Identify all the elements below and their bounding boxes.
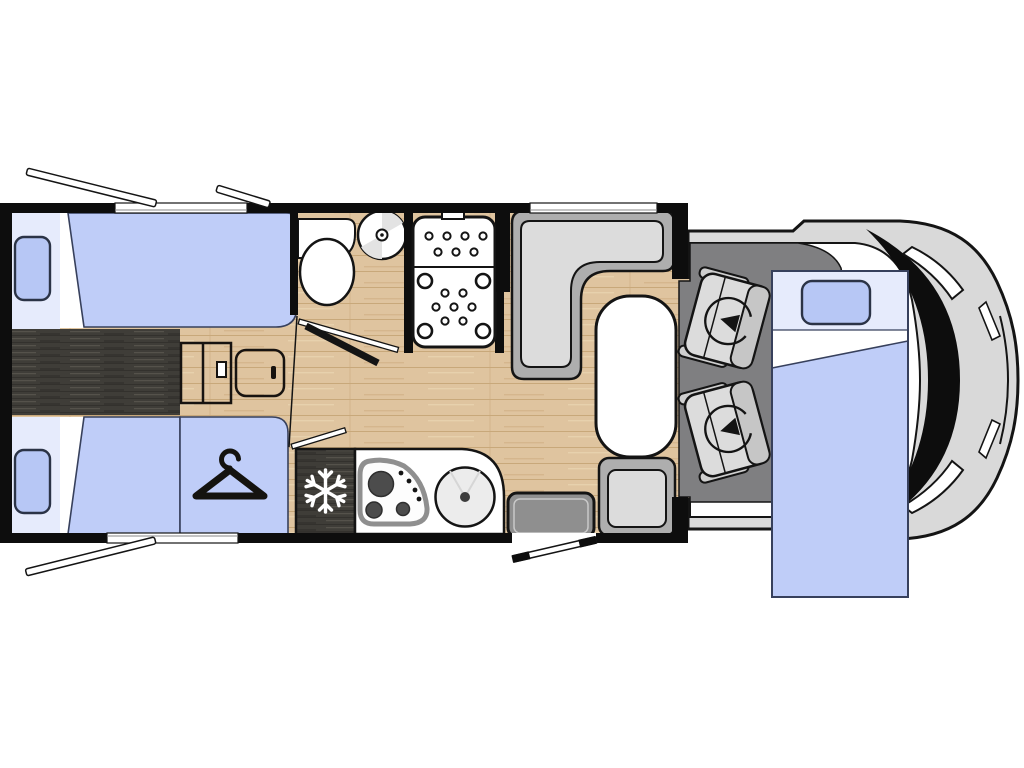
- wall-cab-stub-top: [672, 203, 688, 279]
- drop-down-bed: [772, 271, 908, 597]
- floorplan-svg: [0, 0, 1024, 768]
- wall-top-1: [0, 203, 115, 213]
- wall-shower-stub: [496, 203, 510, 292]
- entrance: [508, 493, 594, 537]
- motorhome-floorplan: [0, 0, 1024, 768]
- drop-bed-pillow: [802, 281, 870, 324]
- kitchen: [296, 449, 504, 534]
- single-bed-bottom: [12, 417, 180, 534]
- bedroom-window-bottom: [107, 533, 238, 543]
- wardrobe: [180, 417, 288, 534]
- wall-top-2: [247, 203, 530, 213]
- habitation: [0, 168, 688, 576]
- pillow: [15, 237, 50, 300]
- open-window-bar-top-1: [26, 168, 157, 207]
- wall-cab-stub-bottom: [672, 497, 688, 543]
- bed-mattress: [68, 213, 297, 327]
- single-bed-top: [12, 213, 297, 329]
- bed-mattress: [68, 417, 180, 534]
- dinette-side-seat: [599, 458, 675, 536]
- toilet: [300, 239, 354, 305]
- bedroom-walkway: [10, 329, 180, 415]
- wall-rear: [0, 203, 12, 543]
- shower-cabin: [404, 205, 504, 353]
- kitchen-sink: [436, 468, 495, 527]
- wall-bottom-1: [0, 533, 107, 543]
- cabinet-handle: [271, 366, 276, 379]
- dinette-window: [530, 203, 657, 213]
- steps-handle: [217, 362, 226, 377]
- pillow: [15, 450, 50, 513]
- dinette-table: [596, 296, 676, 457]
- wall-bottom-2: [238, 533, 512, 543]
- wall-bathroom: [290, 203, 298, 315]
- bedroom-window-top: [115, 203, 247, 213]
- washbasin: [358, 211, 406, 259]
